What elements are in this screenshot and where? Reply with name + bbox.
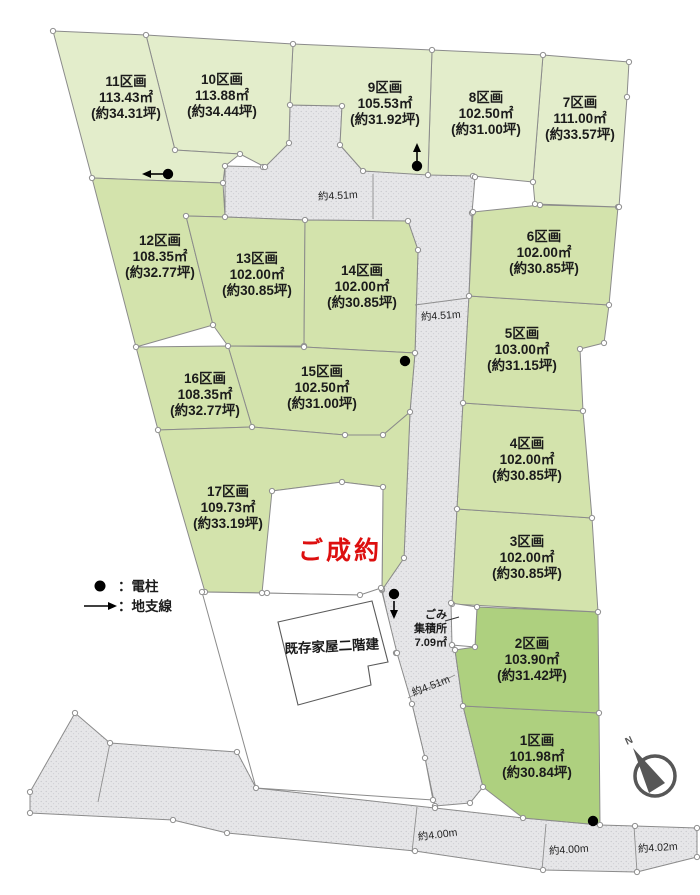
survey-node	[422, 755, 427, 760]
plot-14-label: 14区画	[341, 263, 383, 278]
plot-1-label: (約30.84坪)	[502, 764, 572, 780]
survey-node	[540, 52, 545, 57]
plot-16-label: (約32.77坪)	[170, 402, 240, 418]
survey-node	[301, 344, 306, 349]
plot-5-label: 5区画	[505, 326, 540, 341]
survey-node	[577, 346, 582, 351]
plot-16-label: 16区画	[184, 371, 226, 386]
survey-node	[694, 854, 699, 859]
plot-4-label: 102.00㎡	[500, 451, 555, 467]
plot-1-label: 101.98㎡	[510, 748, 565, 764]
plot-3-label: 102.00㎡	[500, 549, 555, 565]
survey-node	[401, 555, 406, 560]
survey-node	[360, 168, 365, 173]
survey-node	[224, 830, 229, 835]
utility-pole-icon	[588, 816, 598, 826]
survey-node	[27, 789, 32, 794]
plot-12-label: 108.35㎡	[133, 248, 188, 264]
survey-node	[183, 213, 188, 218]
survey-node	[339, 103, 344, 108]
plot-17-label: (約33.19坪)	[193, 515, 263, 531]
survey-node	[425, 172, 430, 177]
sold-label: ご成約	[298, 536, 382, 565]
survey-node	[597, 822, 602, 827]
utility-pole-icon	[400, 356, 410, 366]
garbage-station-label: 7.09㎡	[415, 635, 447, 649]
plot-11-label: (約34.31坪)	[91, 105, 161, 121]
survey-node	[222, 214, 227, 219]
plot-5-label: 103.00㎡	[495, 341, 550, 357]
plot-5-label: (約31.15坪)	[487, 357, 557, 373]
survey-node	[407, 409, 412, 414]
survey-node	[580, 408, 585, 413]
survey-node	[472, 644, 477, 649]
survey-node	[237, 151, 242, 156]
survey-node	[601, 340, 606, 345]
plot-14-label: (約30.85坪)	[327, 294, 397, 310]
survey-node	[449, 642, 454, 647]
survey-node	[286, 140, 291, 145]
survey-node	[537, 202, 542, 207]
survey-node	[634, 869, 639, 874]
compass-north-label: N	[624, 735, 635, 748]
plot-13-label: 102.00㎡	[230, 266, 285, 282]
survey-node	[342, 432, 347, 437]
garbage-station-box	[451, 603, 477, 647]
plot-12-label: (約32.77坪)	[125, 264, 195, 280]
survey-node	[467, 800, 472, 805]
survey-node	[429, 47, 434, 52]
survey-node	[133, 344, 138, 349]
plot-9-label: 105.53㎡	[358, 95, 413, 111]
plot-4-label: (約30.85坪)	[492, 467, 562, 483]
survey-node	[287, 102, 292, 107]
plot-7-label: 7区画	[563, 95, 598, 110]
survey-node	[532, 201, 537, 206]
plot-8-label: 102.50㎡	[459, 105, 514, 121]
plot-16-label: 108.35㎡	[178, 386, 233, 402]
survey-node	[466, 293, 471, 298]
survey-node	[430, 797, 435, 802]
survey-node	[234, 749, 239, 754]
survey-node	[290, 41, 295, 46]
survey-node	[357, 592, 362, 597]
survey-node	[264, 590, 269, 595]
survey-node	[460, 400, 465, 405]
survey-node	[89, 175, 94, 180]
plot-15-label: (約31.00坪)	[287, 395, 357, 411]
survey-node	[540, 867, 545, 872]
utility-pole-icon	[163, 169, 173, 179]
plot-13-label: 13区画	[236, 251, 278, 266]
plot-17-label: 17区画	[207, 484, 249, 499]
survey-node	[595, 609, 600, 614]
legend-guy-wire-arrow-icon-head	[108, 602, 117, 610]
survey-node	[606, 302, 611, 307]
plot-9-label: 9区画	[368, 80, 403, 95]
survey-node	[415, 247, 420, 252]
survey-node	[520, 815, 525, 820]
legend-pole-icon	[95, 581, 106, 592]
plot-2-label: (約31.42坪)	[497, 667, 567, 683]
plot-10-label: 10区画	[201, 72, 243, 87]
plot-10-label: 113.88㎡	[195, 87, 250, 103]
survey-node	[199, 589, 204, 594]
survey-node	[155, 427, 160, 432]
survey-node	[72, 710, 77, 715]
utility-pole-icon	[389, 589, 399, 599]
survey-node	[172, 147, 177, 152]
survey-node	[253, 785, 258, 790]
plot-10-label: (約34.44坪)	[187, 103, 257, 119]
survey-node	[596, 710, 601, 715]
plot-6-label: 102.00㎡	[517, 244, 572, 260]
plot-1-label: 1区画	[520, 733, 555, 748]
plot-14-label: 102.00㎡	[335, 278, 390, 294]
survey-node	[470, 209, 475, 214]
survey-node	[269, 488, 274, 493]
survey-node	[530, 179, 535, 184]
plot-15-label: 102.50㎡	[295, 379, 350, 395]
survey-node	[624, 94, 629, 99]
plot-17-label: 109.73㎡	[201, 499, 256, 515]
survey-node	[472, 174, 477, 179]
survey-node	[448, 600, 453, 605]
plot-11-label: 113.43㎡	[99, 89, 154, 105]
land-plot-map-page: ごみ集積所7.09㎡既存家屋二階建ご成約1区画101.98㎡(約30.84坪)2…	[0, 0, 700, 895]
survey-node	[107, 740, 112, 745]
survey-node	[262, 164, 267, 169]
plot-7-label: 111.00㎡	[553, 110, 607, 126]
survey-node	[405, 218, 410, 223]
survey-node	[220, 180, 225, 185]
plot-11-label: 11区画	[105, 74, 146, 89]
survey-node	[210, 322, 215, 327]
survey-node	[380, 484, 385, 489]
garbage-station-label: 集積所	[413, 621, 447, 635]
survey-node	[339, 479, 344, 484]
survey-node	[143, 32, 148, 37]
plot-4-label: 4区画	[510, 436, 545, 451]
plot-2-label: 103.90㎡	[505, 651, 560, 667]
site-map: ごみ集積所7.09㎡既存家屋二階建ご成約1区画101.98㎡(約30.84坪)2…	[0, 0, 700, 895]
survey-node	[616, 204, 621, 209]
road-width-label: 約4.51m	[318, 188, 359, 203]
survey-node	[474, 604, 479, 609]
survey-node	[626, 59, 631, 64]
plot-3-label: (約30.85坪)	[492, 565, 562, 581]
legend-guy-wire-label: ：地支線	[118, 598, 172, 614]
survey-node	[380, 432, 385, 437]
plot-9-label: (約31.92坪)	[350, 111, 420, 127]
plot-2-label: 2区画	[515, 636, 550, 651]
plot-6-label: 6区画	[527, 229, 562, 244]
survey-node	[409, 701, 414, 706]
legend-pole-label: ：電柱	[118, 578, 159, 594]
survey-node	[632, 823, 637, 828]
plot-8-label: (約31.00坪)	[451, 121, 521, 137]
survey-node	[337, 142, 342, 147]
survey-node	[412, 350, 417, 355]
survey-node	[249, 424, 254, 429]
survey-node	[222, 163, 227, 168]
survey-node	[394, 650, 399, 655]
survey-node	[302, 217, 307, 222]
utility-pole-icon	[412, 161, 422, 171]
survey-node	[694, 825, 699, 830]
plot-7-label: (約33.57坪)	[545, 126, 615, 142]
survey-node	[452, 647, 457, 652]
survey-node	[432, 805, 437, 810]
survey-node	[27, 810, 32, 815]
survey-node	[460, 703, 465, 708]
plot-3-label: 3区画	[510, 534, 545, 549]
survey-node	[454, 506, 459, 511]
plot-6-label: (約30.85坪)	[509, 260, 579, 276]
survey-node	[412, 848, 417, 853]
survey-node	[170, 817, 175, 822]
survey-node	[480, 784, 485, 789]
survey-node	[259, 590, 264, 595]
survey-node	[225, 343, 230, 348]
garbage-station-label: ごみ	[425, 607, 447, 621]
survey-node	[50, 28, 55, 33]
plot-13-label: (約30.85坪)	[222, 282, 292, 298]
plot-15-label: 15区画	[301, 364, 343, 379]
survey-node	[378, 585, 383, 590]
survey-node	[589, 515, 594, 520]
plot-8-label: 8区画	[469, 90, 504, 105]
plot-12-label: 12区画	[139, 233, 181, 248]
